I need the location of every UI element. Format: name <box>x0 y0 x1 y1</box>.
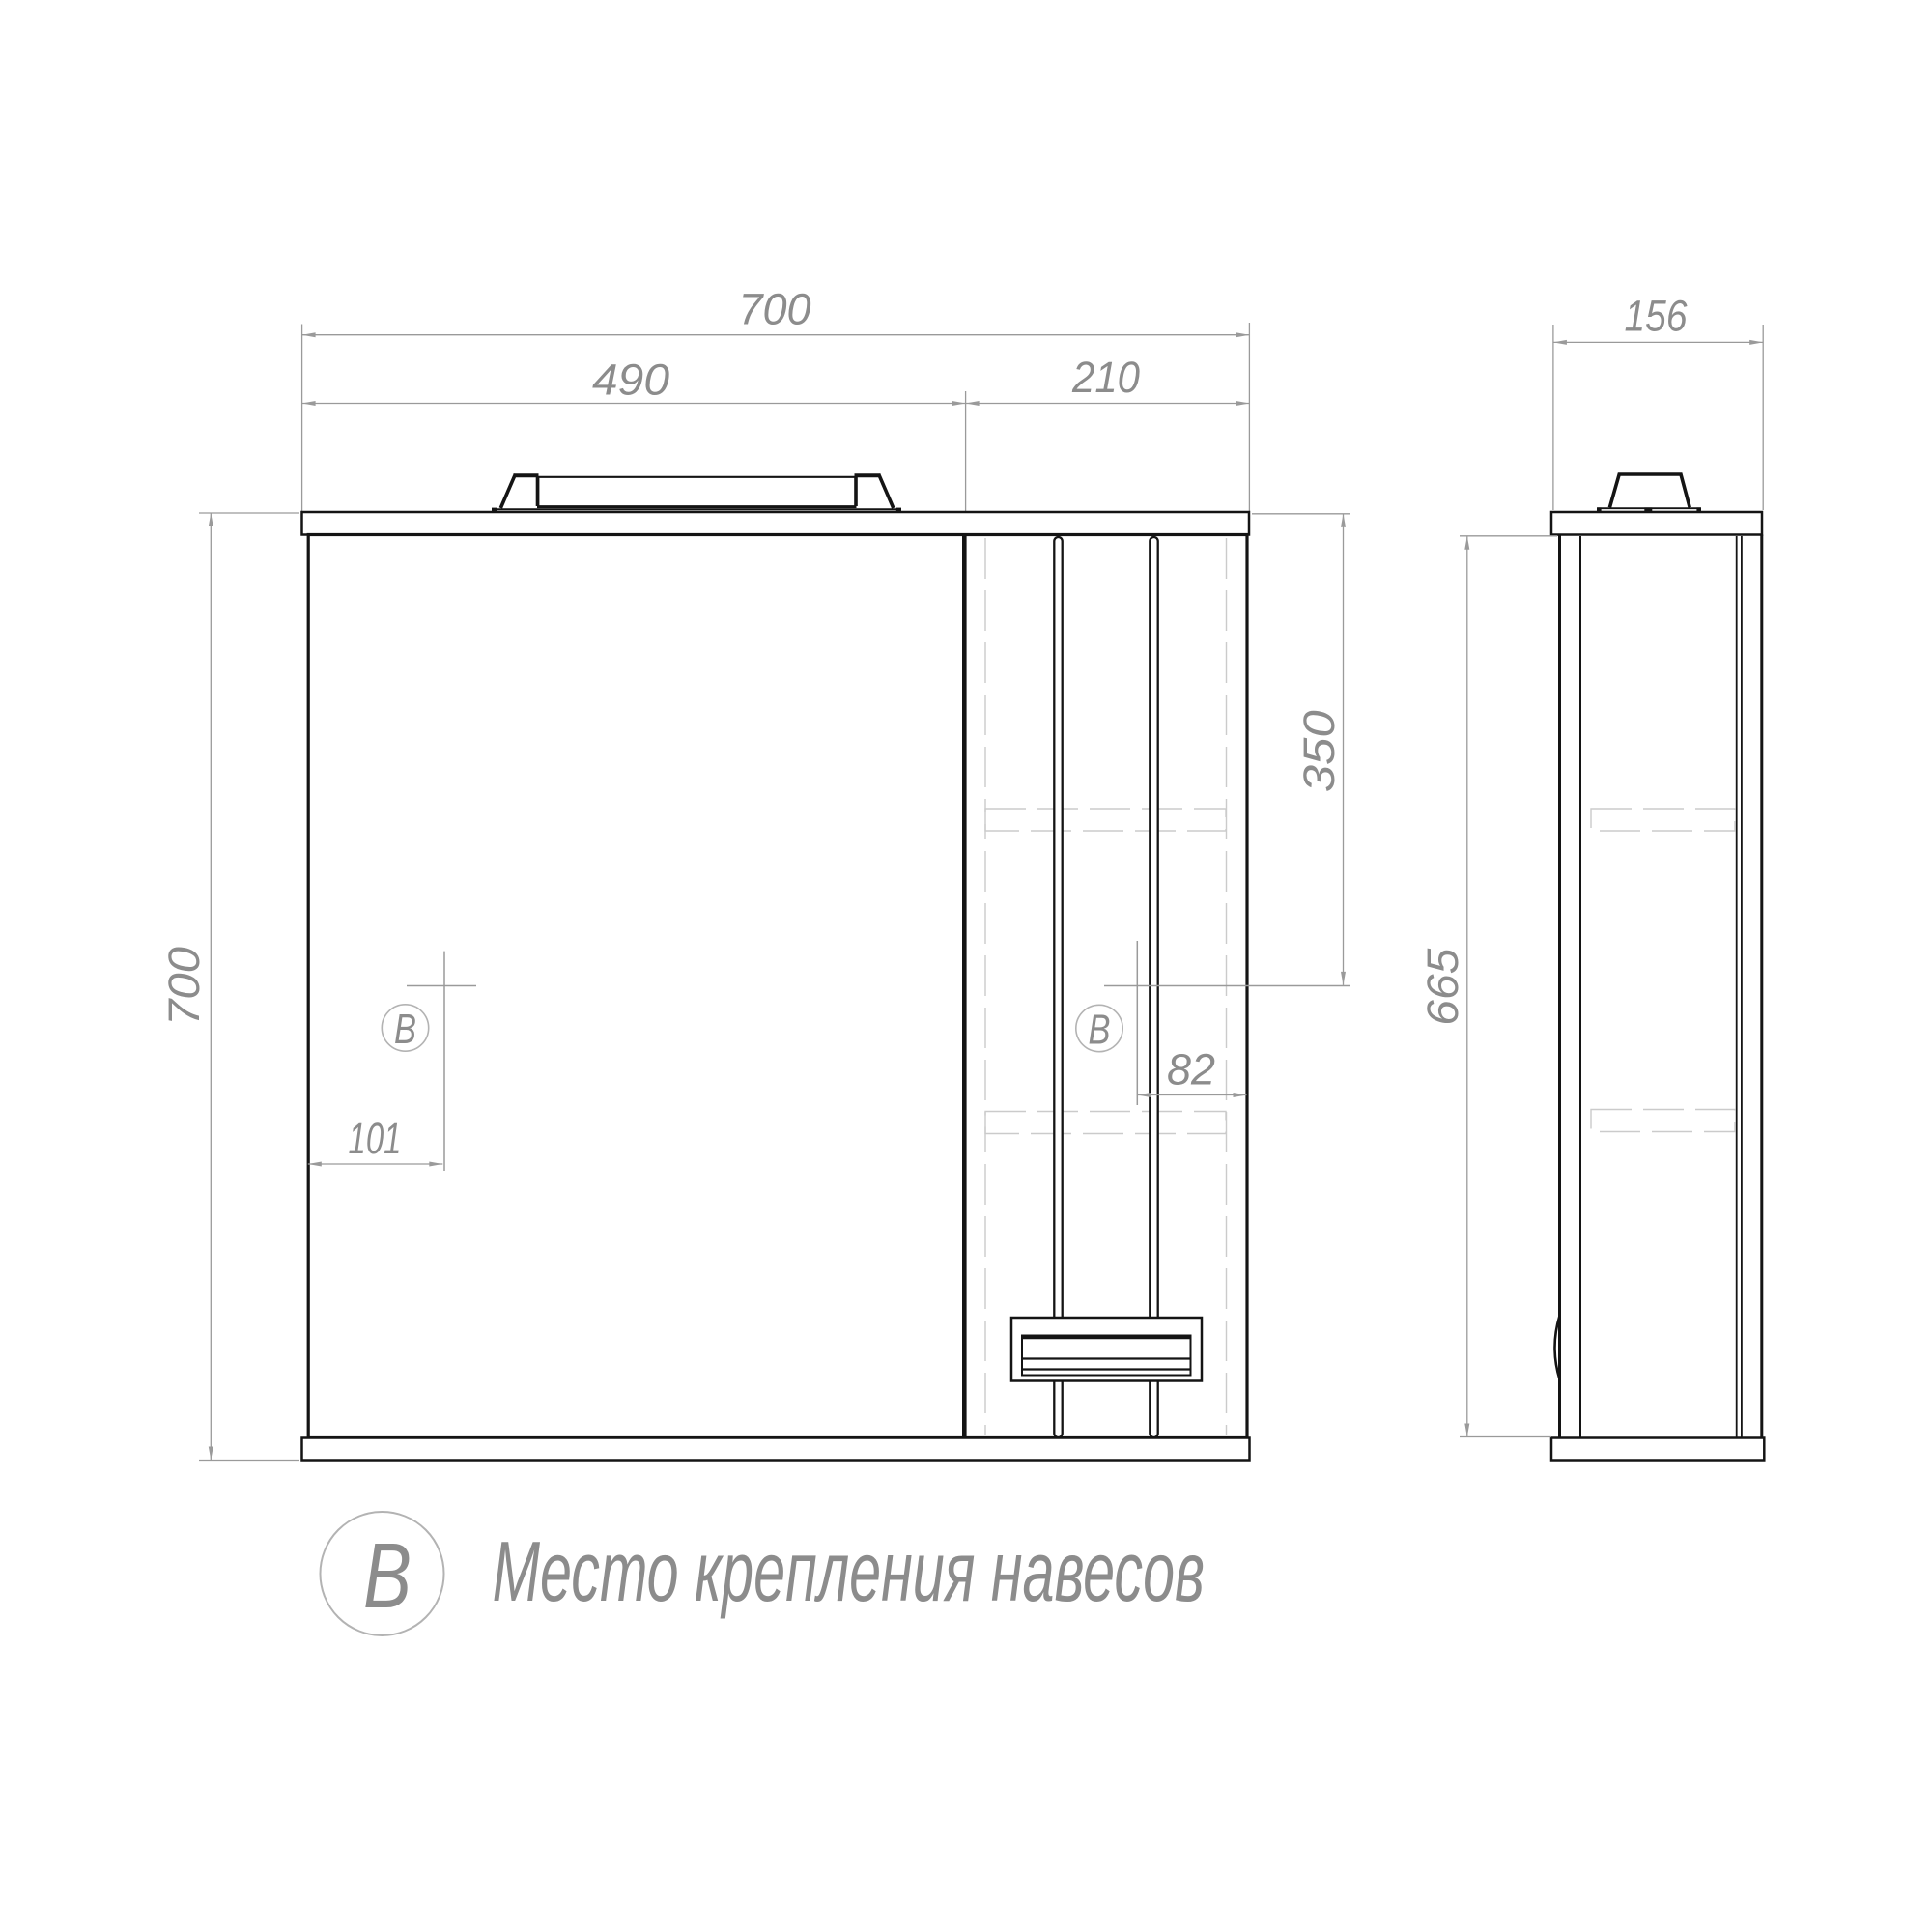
svg-text:B: B <box>394 1006 416 1053</box>
svg-text:700: 700 <box>159 947 209 1026</box>
svg-text:156: 156 <box>1625 292 1689 341</box>
svg-text:665: 665 <box>1418 948 1467 1026</box>
svg-text:82: 82 <box>1167 1045 1215 1094</box>
svg-text:101: 101 <box>349 1114 402 1163</box>
svg-text:B: B <box>363 1524 412 1628</box>
svg-text:490: 490 <box>592 355 669 405</box>
svg-text:Место крепления навесов: Место крепления навесов <box>493 1523 1205 1619</box>
svg-text:350: 350 <box>1294 710 1344 792</box>
svg-text:700: 700 <box>738 285 810 334</box>
svg-text:B: B <box>1089 1007 1111 1054</box>
svg-text:210: 210 <box>1071 353 1140 402</box>
